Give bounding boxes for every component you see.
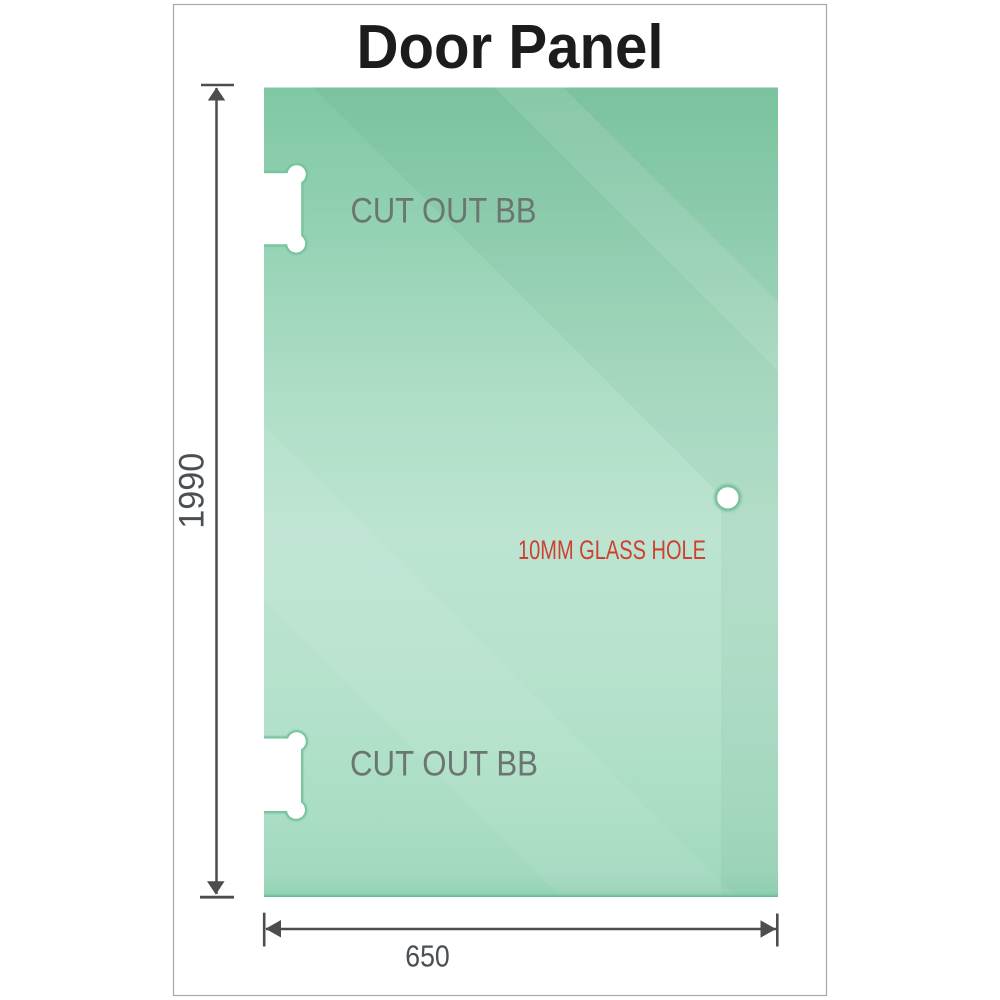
svg-text:CUT OUT BB: CUT OUT BB	[351, 191, 537, 230]
svg-text:1990: 1990	[172, 453, 211, 529]
svg-text:Door Panel: Door Panel	[357, 13, 664, 82]
svg-text:650: 650	[405, 940, 450, 974]
svg-text:CUT OUT BB: CUT OUT BB	[350, 744, 538, 783]
svg-text:10MM GLASS HOLE: 10MM GLASS HOLE	[518, 535, 706, 565]
